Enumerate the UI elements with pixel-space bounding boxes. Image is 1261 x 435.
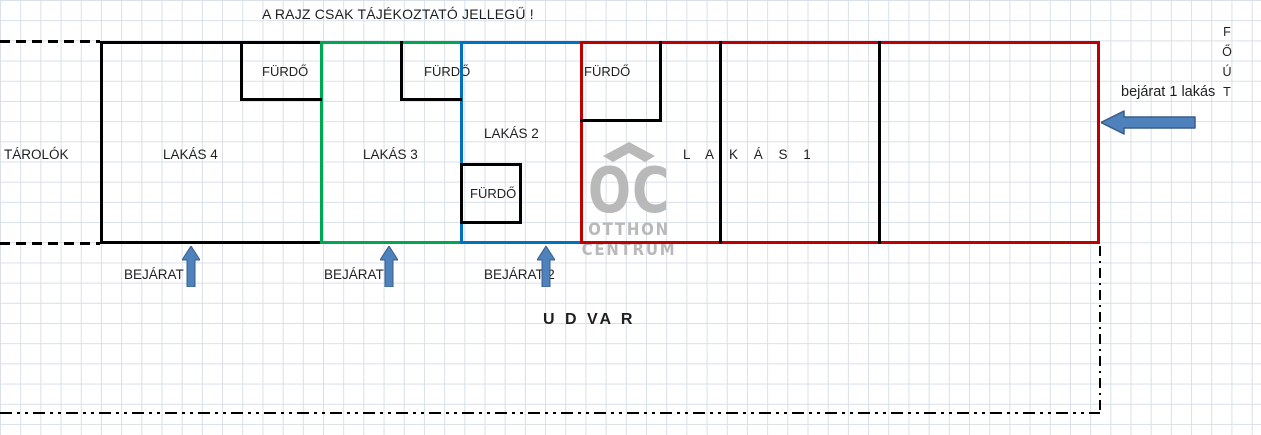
main-road-letter-u: Ú bbox=[1221, 65, 1233, 79]
unit-label-lakas1: L A K Á S 1 bbox=[683, 147, 817, 162]
entrance-label-lakas3: BEJÁRAT bbox=[324, 267, 384, 282]
main-road-letter-f: F bbox=[1221, 25, 1233, 39]
entrance-arrow-left-lakas1 bbox=[1101, 110, 1196, 135]
storage-label: TÁROLÓK bbox=[4, 147, 69, 162]
courtyard-label: U D VA R bbox=[543, 311, 635, 329]
bathroom-label-lakas1: FÜRDŐ bbox=[584, 64, 630, 79]
bathroom-box-lakas4 bbox=[240, 41, 322, 101]
entrance-arrow-up-lakas4 bbox=[182, 246, 200, 287]
storage-bottom-dashed-wall bbox=[0, 242, 100, 245]
plot-right-dashed-boundary bbox=[1099, 246, 1101, 413]
floor-plan-canvas: A RAJZ CSAK TÁJÉKOZTATÓ JELLEGŰ ! OC OTT… bbox=[0, 0, 1261, 435]
bathroom-box-lakas2 bbox=[460, 163, 522, 224]
bathroom-box-lakas3 bbox=[400, 41, 462, 101]
plan-disclaimer-title: A RAJZ CSAK TÁJÉKOZTATÓ JELLEGŰ ! bbox=[262, 6, 534, 22]
entrance-label-lakas1: bejárat 1 lakás bbox=[1121, 84, 1215, 100]
entrance-arrow-up-lakas2 bbox=[537, 246, 555, 287]
unit-lakas1-room-divider-2 bbox=[878, 41, 881, 244]
bathroom-box-lakas1 bbox=[580, 41, 662, 122]
main-road-letter-o: Ő bbox=[1221, 45, 1233, 59]
entrance-arrow-up-lakas3 bbox=[380, 246, 398, 287]
unit-lakas1-room-divider-1 bbox=[719, 41, 722, 244]
entrance-label-lakas4: BEJÁRAT bbox=[124, 267, 184, 282]
main-road-letter-t: T bbox=[1221, 85, 1233, 99]
storage-top-dashed-wall bbox=[0, 40, 100, 43]
plot-bottom-dashed-boundary bbox=[0, 412, 1100, 414]
